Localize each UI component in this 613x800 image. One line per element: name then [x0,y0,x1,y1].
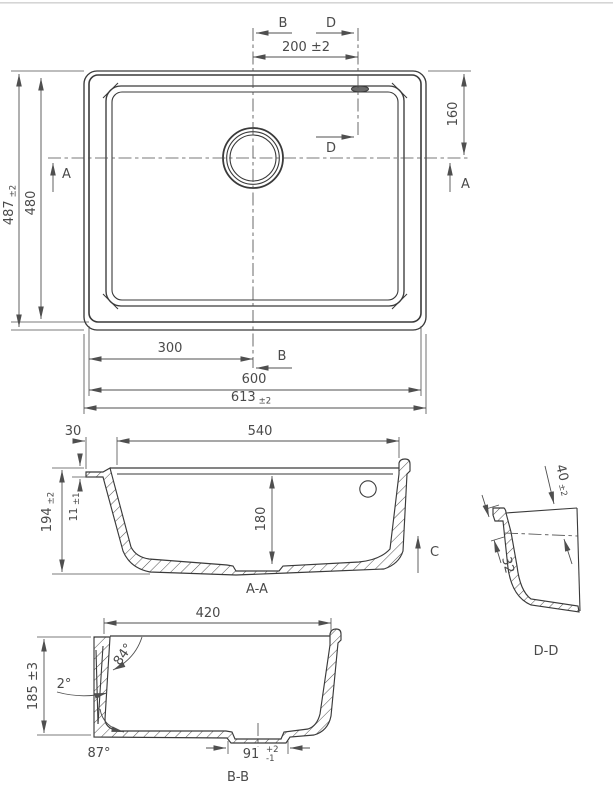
dim-text-480: 480 [24,191,39,216]
dim-text-300: 300 [158,341,183,356]
section-aa-view: 30 540 194±2 11±1 180 C A-A [40,424,439,597]
section-label-d-top: D [326,16,336,31]
dim-11-tol: ±1 [72,492,82,505]
dim-text-613: 613±2 [231,390,271,407]
drawing-sheet: B D 200 ±2 160 A A 487±2 480 300 B D 600 [0,0,613,800]
section-label-c: C [430,545,439,560]
dim-text-91-tol-minus: -1 [266,754,274,764]
dim-487-tol: ±2 [9,185,19,198]
aa-geometry [86,459,410,575]
dim-613-value: 613 [231,390,256,405]
dim-text-185: 185 ±3 [26,662,41,710]
bowl-corner-miters [103,83,407,309]
dim-text-600: 600 [242,372,267,387]
dim-194-value: 194 [40,507,55,532]
section-label-b-top: B [279,16,288,31]
aa-wall-section [86,459,410,575]
dim-arrow-32-top [482,495,489,517]
section-label-a-left: A [62,167,71,182]
dim-text-11: 11±1 [67,492,82,521]
dim-613-tol: ±2 [259,397,272,407]
aa-overflow-hole [360,481,376,497]
dim-text-30: 30 [65,424,82,439]
dim-text-194: 194±2 [40,492,57,532]
overflow-slot [352,86,369,92]
dim-text-91: 91 [243,747,260,762]
angle-text-84: 84° [111,641,137,668]
section-dd-label: D-D [534,644,559,659]
sink-technical-drawing: B D 200 ±2 160 A A 487±2 480 300 B D 600 [0,0,613,800]
angle-text-87: 87° [87,746,110,761]
section-bb-view: 420 185 ±3 84° 2° 87° 91 +2 -1 B-B [26,606,341,785]
plan-view: B D 200 ±2 160 A A 487±2 480 300 B D 600 [2,16,471,414]
section-aa-label: A-A [246,582,268,597]
plan-section-lines [48,28,470,368]
dim-arrow-40-top [545,466,554,504]
dd-top-edge [506,508,577,513]
dim-text-420: 420 [196,606,221,621]
dim-text-160: 160 [446,102,461,127]
dim-text-487: 487±2 [2,185,19,225]
dim-40-value: 40 [552,463,571,483]
section-label-d-bottom: D [326,141,336,156]
dim-arrow-40-bottom [564,539,572,564]
bowl-outer-outline [106,86,404,306]
section-label-b-bottom: B [278,349,287,364]
dim-11-value: 11 [67,508,80,522]
dim-32-ext-bottom [491,537,504,541]
dd-right-edge [577,508,580,611]
dd-overflow-centerline [505,533,578,536]
dim-text-200: 200 ±2 [282,40,330,55]
bb-dimensions: 420 185 ±3 84° 2° 87° 91 +2 -1 B-B [26,606,331,785]
dim-text-40: 40±2 [551,463,574,498]
dd-dimensions: 40±2 32 D-D [482,463,574,659]
dim-text-540: 540 [248,424,273,439]
dim-text-32: 32 [498,555,517,575]
dim-194-tol: ±2 [47,492,57,505]
bowl-inner-outline [112,92,398,300]
section-bb-label: B-B [227,770,249,785]
rim-outline [89,75,421,322]
page-top-border [0,2,613,4]
section-label-a-right: A [461,177,470,192]
flange-outline [84,71,426,330]
plan-extension-lines [11,71,471,414]
aa-extension-lines [52,437,399,574]
dim-text-180: 180 [254,507,269,532]
dim-487-value: 487 [2,200,17,225]
plan-geometry [84,71,426,330]
angle-text-2: 2° [57,677,72,692]
section-dd-view: 40±2 32 D-D [482,463,580,659]
dim-40-tol: ±2 [556,483,569,498]
